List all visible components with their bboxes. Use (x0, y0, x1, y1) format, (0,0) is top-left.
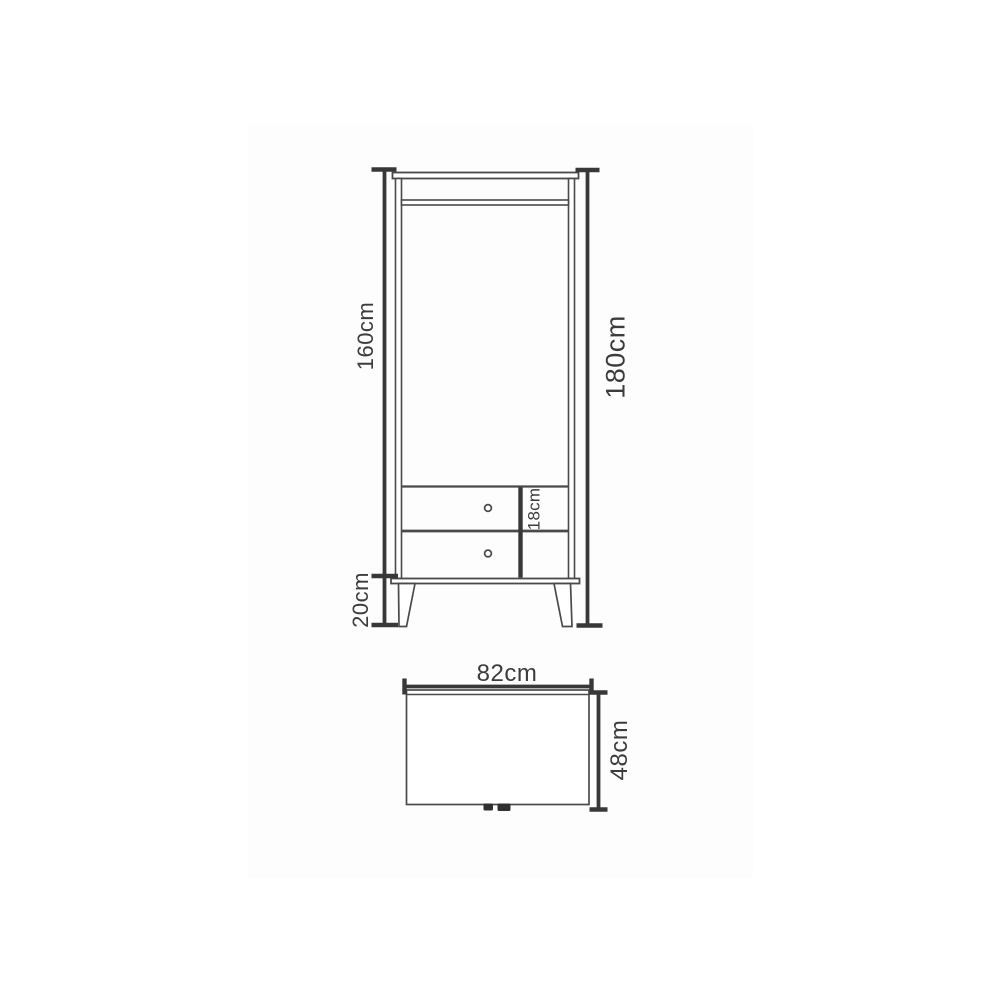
hanging-rod (402, 200, 569, 205)
lower-drawer-knob (485, 550, 492, 557)
dim-label-drawer-height: 18cm (526, 488, 543, 530)
foot-mark-right (498, 804, 511, 812)
dimension-depth (590, 693, 608, 810)
foot-mark-left (484, 804, 494, 811)
left-side-panel (396, 179, 402, 579)
furniture-dimension-diagram: 160cm 180cm 20cm 18cm 82cm 48cm (0, 0, 1000, 1000)
bottom-panel (391, 579, 580, 584)
wardrobe-top-view (407, 690, 590, 811)
dim-label-leg-height: 20cm (350, 572, 372, 628)
upper-drawer-knob (485, 505, 492, 512)
footprint-outline (407, 690, 590, 805)
dim-label-width: 82cm (477, 662, 538, 686)
wardrobe-front-view (391, 173, 580, 627)
dim-label-total-height: 180cm (603, 315, 630, 399)
dimension-body-height (372, 170, 399, 578)
dim-label-body-height: 160cm (355, 302, 377, 371)
technical-drawing (0, 0, 1000, 1000)
right-side-panel (569, 179, 575, 579)
front-right-leg (554, 584, 572, 627)
front-left-leg (399, 584, 416, 627)
dimension-total-height (576, 170, 603, 626)
top-panel (393, 173, 579, 179)
dim-label-depth: 48cm (608, 720, 632, 781)
